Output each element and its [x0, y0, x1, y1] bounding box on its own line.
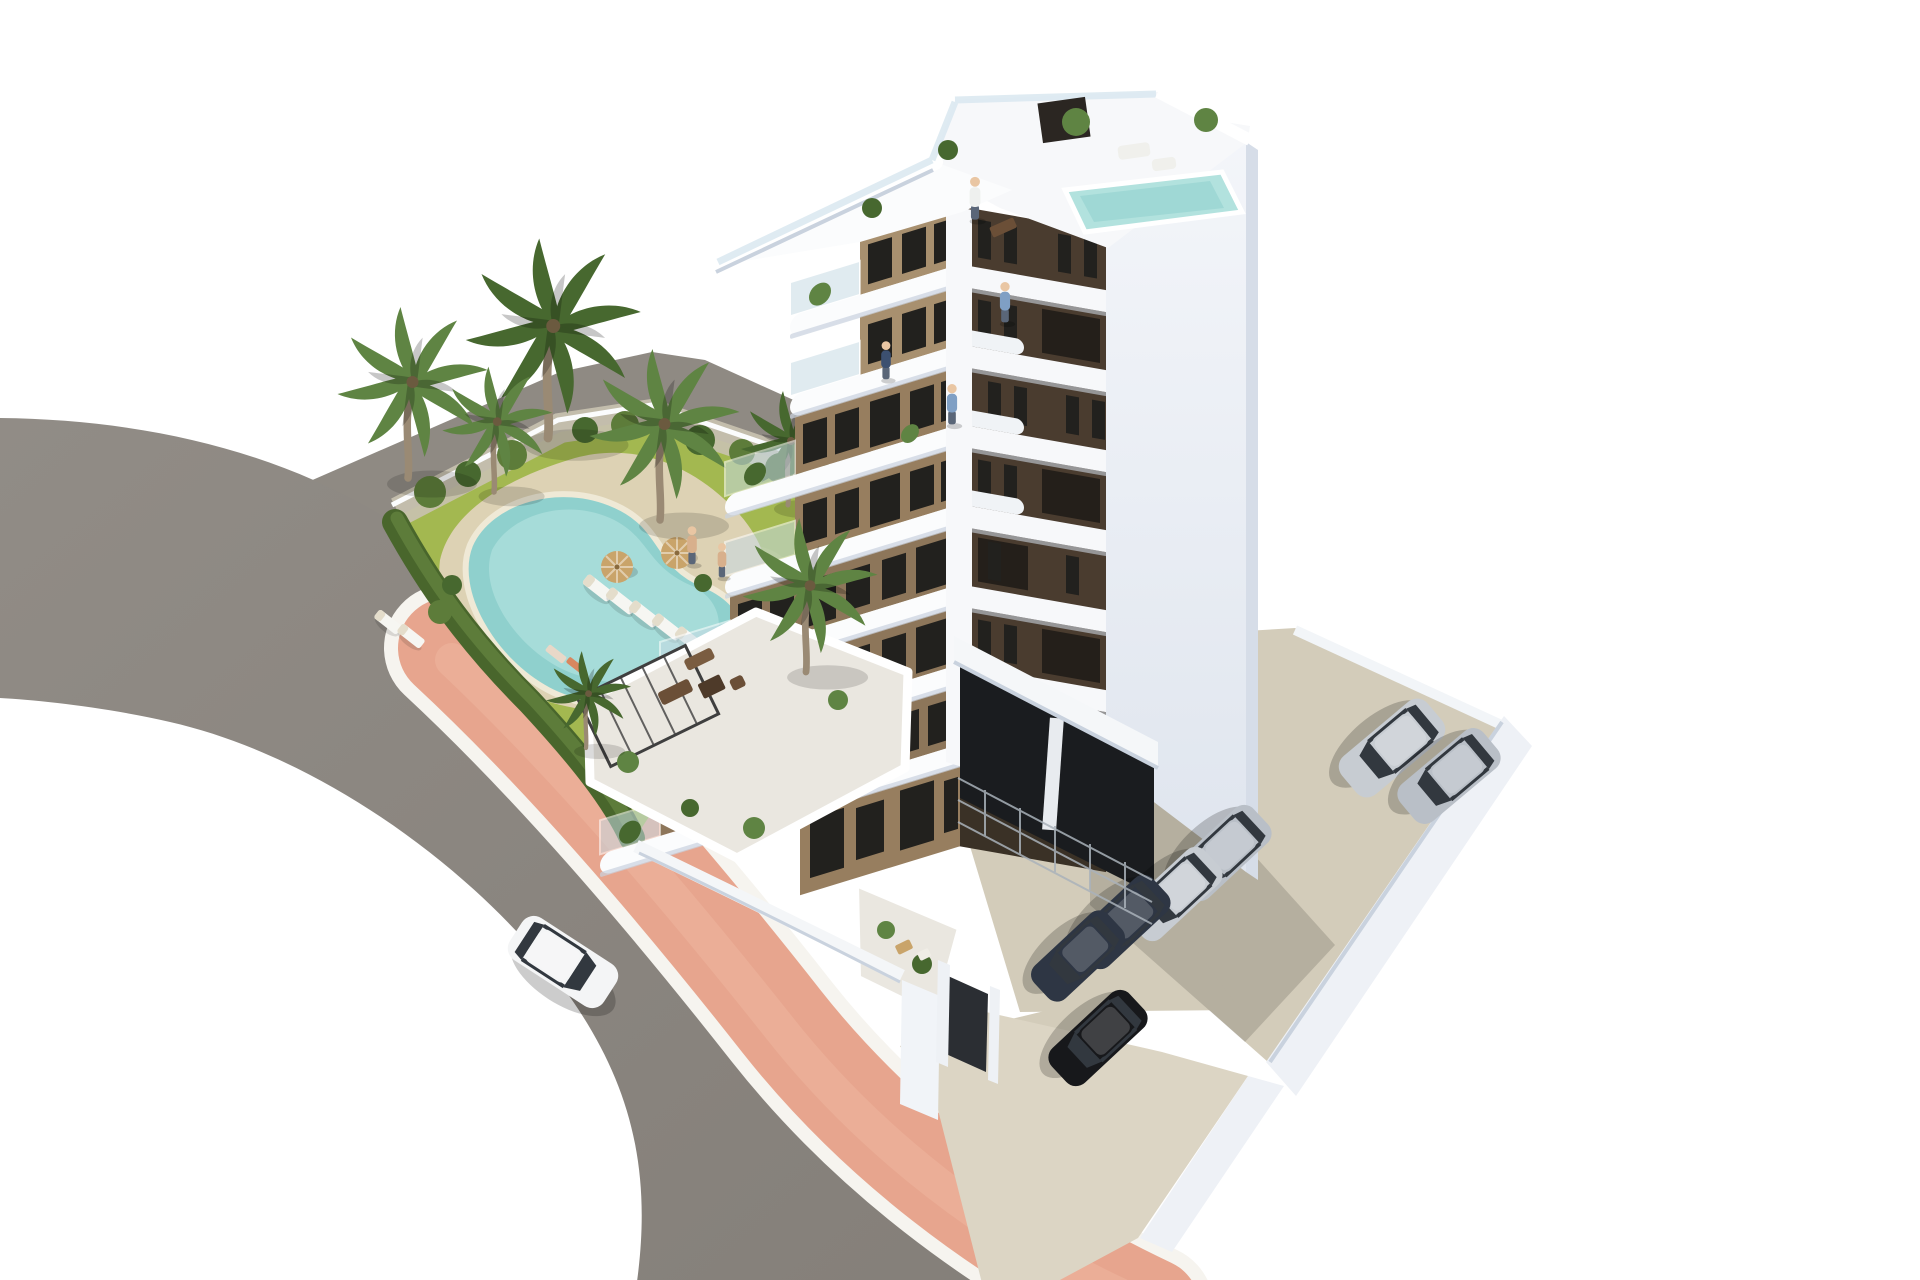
- gate-post: [936, 960, 950, 1067]
- architectural-render-canvas: Aerial 3D render of a modern 8-storey wh…: [0, 0, 1920, 1280]
- roof-plant: [1062, 108, 1090, 136]
- end-wall-edge: [1246, 142, 1258, 880]
- roof-plant: [1194, 108, 1218, 132]
- roof-plant: [862, 198, 882, 218]
- roof-plant: [938, 140, 958, 160]
- ramp-wall: [900, 980, 940, 1120]
- corner-terrace-plant: [877, 921, 895, 939]
- render-scene: [0, 0, 1920, 1280]
- gate-post: [988, 986, 1000, 1084]
